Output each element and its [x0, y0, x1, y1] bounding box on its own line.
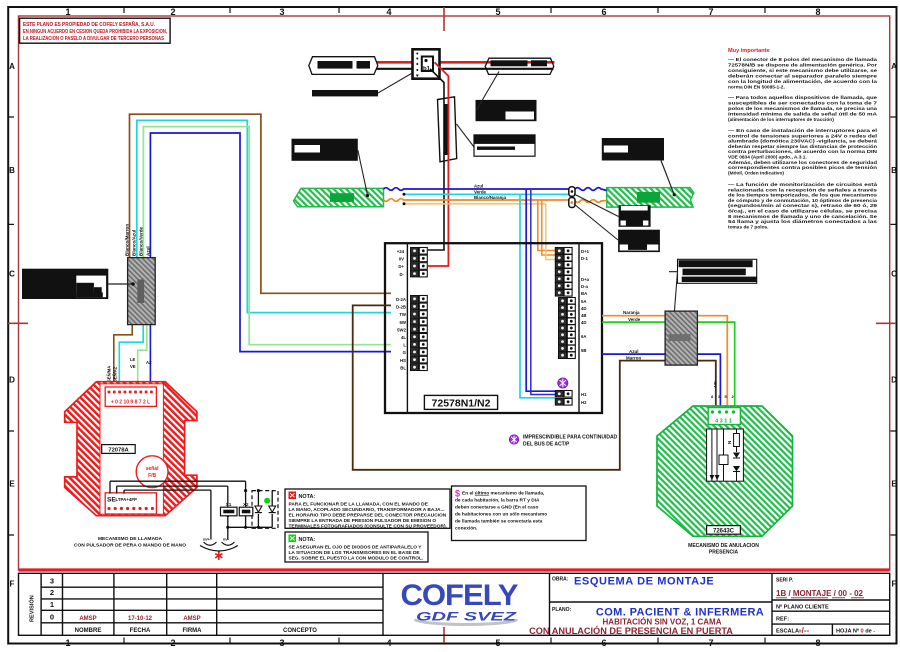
svg-text:contra perturbaciones, de a: contra perturbaciones, de acuerdo con la…	[728, 149, 878, 155]
svg-text:N: N	[727, 441, 732, 444]
svg-text:TERMINALES FOTOGRAFIADOS (CO: TERMINALES FOTOGRAFIADOS (CONSULTE CON S…	[289, 523, 447, 529]
svg-text:ó/caj., en el caso de uti: ó/caj., en el caso de utilizarse células…	[728, 209, 877, 215]
svg-text:6A: 6A	[581, 334, 587, 339]
svg-text:-/--: -/--	[799, 626, 810, 635]
svg-text:conexión.: conexión.	[455, 526, 477, 532]
svg-text:MECANISMO DE LLAMADA: MECANISMO DE LLAMADA	[98, 536, 163, 542]
svg-text:E: E	[9, 480, 15, 489]
svg-text:+ 0 2 10 9 8 7 2 L: + 0 2 10 9 8 7 2 L	[111, 400, 150, 406]
svg-text:deberán conectar al separad: deberán conectar al separador paralelo s…	[728, 74, 877, 80]
svg-text:CON PULSADOR DE PERA O MANDO D: CON PULSADOR DE PERA O MANDO DE MANO	[74, 543, 186, 549]
svg-text:BA: BA	[581, 291, 587, 296]
svg-text:señal: señal	[146, 466, 159, 472]
svg-text:tomas de 7 polos.: tomas de 7 polos.	[728, 224, 769, 230]
svg-text:4L: 4L	[401, 335, 406, 340]
svg-text:D-2A: D-2A	[396, 297, 406, 302]
svg-text:DEL BUS DE ACT/P: DEL BUS DE ACT/P	[523, 442, 570, 448]
svg-text:+24: +24	[397, 249, 405, 254]
svg-text:H1: H1	[581, 392, 587, 397]
svg-text:1: 1	[65, 638, 70, 648]
svg-text:susceptibles de ser conecta: susceptibles de ser conectados con la to…	[728, 101, 877, 107]
svg-text:polos de los mecanismos de lla: polos de los mecanismos de llamada, se p…	[728, 106, 877, 112]
svg-text:VDE 0834 (April 2000) apdo., A: VDE 0834 (April 2000) apdo., A.3.1.	[728, 155, 807, 161]
svg-text:deberán respetar siempre la: deberán respetar siempre las distancias …	[728, 144, 877, 150]
svg-text:B: B	[9, 166, 15, 175]
svg-text:72578N1/N2: 72578N1/N2	[432, 398, 491, 410]
svg-text:SIEMPRE LA ENTRADA DE PRES: SIEMPRE LA ENTRADA DE PRESION PULSADOR D…	[289, 518, 437, 524]
svg-text:HS: HS	[400, 358, 406, 363]
svg-text:deben conectarse a GND (En: deben conectarse a GND (En el caso	[455, 505, 539, 511]
svg-text:L: L	[403, 343, 406, 348]
svg-text:D+a: D+a	[581, 277, 590, 282]
svg-text:F: F	[892, 580, 897, 589]
svg-text:B: B	[891, 166, 897, 175]
svg-text:IMPRESCINDIBLE PARA CONTINUIDA: IMPRESCINDIBLE PARA CONTINUIDAD	[523, 435, 618, 441]
svg-text:$: $	[455, 489, 460, 499]
svg-text:BL: BL	[400, 365, 406, 370]
svg-text:4D: 4D	[581, 320, 587, 325]
svg-text:Verde: Verde	[474, 189, 487, 194]
svg-text:5W2: 5W2	[397, 327, 406, 332]
svg-text:En el último mecanismo de: En el último mecanismo de llamada,	[462, 491, 545, 497]
svg-text:A: A	[891, 62, 897, 71]
svg-text:5: 5	[495, 638, 500, 648]
svg-text:X2: X2	[243, 502, 249, 507]
svg-text:REF:: REF:	[776, 617, 789, 623]
svg-text:Marron: Marron	[626, 356, 642, 361]
svg-text:D-: D-	[399, 272, 404, 277]
svg-text:Blanco/Azul: Blanco/Azul	[132, 230, 137, 256]
svg-text:SE ASEGURAN EL OJO DE DIO: SE ASEGURAN EL OJO DE DIODOS DE ANTIPARA…	[289, 544, 423, 550]
svg-text:AMSP: AMSP	[79, 616, 96, 622]
svg-text:D+1: D+1	[581, 249, 590, 254]
svg-text:EN NINGUN ACUERDO EN CESION QU: EN NINGUN ACUERDO EN CESION QUEDA PROHIB…	[23, 29, 167, 35]
svg-text:de cómputo y de conmutació: de cómputo y de conmutación, 10 óptimos …	[728, 198, 877, 204]
svg-text:LA SITUACION DE LOS TRANSM: LA SITUACION DE LOS TRANSMISORES EN EL B…	[289, 550, 421, 556]
svg-text:VE: VE	[130, 364, 136, 369]
svg-text:Naranja: Naranja	[623, 310, 640, 315]
svg-text:TW: TW	[399, 312, 407, 317]
svg-text:LTPA+4FP: LTPA+4FP	[116, 497, 137, 502]
svg-text:REVISIÓN: REVISIÓN	[28, 595, 36, 622]
svg-text:de llamada también se cone: de llamada también se conectaría esta	[455, 519, 543, 525]
svg-text:PARA EL FUNCIONAR DE LA L: PARA EL FUNCIONAR DE LA LLAMADA, CON EL …	[289, 501, 429, 507]
svg-text:Blanco/Verde: Blanco/Verde	[139, 226, 144, 256]
svg-text:Muy importante: Muy importante	[728, 48, 770, 54]
svg-text:PRESENCIA: PRESENCIA	[709, 550, 739, 556]
svg-text:D+: D+	[398, 264, 404, 269]
svg-text:SEÑ/AZ: SEÑ/AZ	[113, 366, 118, 382]
svg-text:AMSP: AMSP	[183, 616, 200, 622]
svg-text:norma DIN EN 50085-1-2.: norma DIN EN 50085-1-2.	[728, 85, 785, 91]
svg-text:1: 1	[50, 600, 54, 609]
svg-text:4 3 1 1: 4 3 1 1	[715, 419, 732, 425]
svg-text:H2: H2	[581, 400, 587, 405]
svg-text:Blanco/Naranja: Blanco/Naranja	[474, 195, 507, 200]
svg-text:m/-: m/-	[223, 537, 230, 542]
svg-text:SERI P.: SERI P.	[776, 578, 794, 584]
svg-text:E: E	[891, 480, 897, 489]
svg-text:0: 0	[50, 612, 54, 621]
svg-text:OBRA:: OBRA:	[552, 577, 569, 583]
svg-text:m/+: m/+	[203, 537, 211, 542]
svg-text:4D: 4D	[581, 306, 587, 311]
svg-text:FECHA: FECHA	[130, 628, 151, 634]
svg-text:4: 4	[386, 638, 391, 648]
svg-text:54 llama y ajusta los diá: 54 llama y ajusta los diámetros conectad…	[728, 219, 877, 225]
svg-text:Azul: Azul	[146, 246, 151, 256]
svg-text:correspondientes contra posi: correspondientes contra posibles picos d…	[728, 165, 877, 171]
svg-text:de los tiempos temporizados: de los tiempos temporizados, de los que …	[728, 193, 877, 199]
svg-text:8 mecanismos de llamada y: 8 mecanismos de llamada y uno de cancela…	[728, 214, 877, 220]
svg-text:0V: 0V	[399, 257, 404, 262]
svg-text:LE: LE	[130, 357, 136, 362]
svg-text:3: 3	[50, 577, 54, 586]
svg-text:CONCEPTO: CONCEPTO	[283, 628, 317, 634]
svg-text:ESCALA:: ESCALA:	[776, 628, 801, 634]
svg-text:COFELY: COFELY	[401, 579, 519, 612]
svg-text:1B / MONTAJE / 00 - 02: 1B / MONTAJE / 00 - 02	[776, 589, 864, 598]
svg-text:LA MANO, ACOPLADO SECUNDARI: LA MANO, ACOPLADO SECUNDARIO, TRANSFORMA…	[289, 507, 445, 513]
svg-text:X1: X1	[226, 502, 232, 507]
svg-text:PLANO:: PLANO:	[552, 607, 572, 613]
svg-text:72078A: 72078A	[108, 448, 129, 454]
svg-text:A/B: A/B	[713, 381, 718, 388]
svg-text:Blanco/Marron: Blanco/Marron	[125, 224, 130, 256]
svg-text:2: 2	[170, 638, 175, 648]
svg-text:con la longitud de alimentació: con la longitud de alimentación, de acue…	[728, 79, 877, 85]
svg-text:2: 2	[50, 588, 54, 597]
svg-text:5W: 5W	[400, 320, 407, 325]
svg-text:Azul: Azul	[474, 184, 483, 189]
svg-text:C: C	[9, 270, 15, 279]
svg-text:(Móvil, Orden Indicativo): (Móvil, Orden Indicativo)	[728, 170, 784, 176]
svg-text:ESTE PLANO ES PROPIEDAD DE COF: ESTE PLANO ES PROPIEDAD DE COFELY ESPAÑA…	[23, 21, 155, 28]
svg-text:de habitaciones con un sól: de habitaciones con un sólo mecanismo	[455, 512, 547, 518]
svg-text:8: 8	[815, 638, 820, 648]
svg-text:de cada habitación, la bar: de cada habitación, la barra RT y DIA	[455, 498, 540, 504]
svg-text:F/B: F/B	[148, 473, 156, 479]
svg-text:— La función de monitorizac: — La función de monitorización de circui…	[728, 182, 877, 188]
svg-text:5A: 5A	[581, 299, 587, 304]
svg-text:D-1: D-1	[581, 256, 589, 261]
svg-text:(segundos/min al conectar s: (segundos/min al conectar s), retraso de…	[728, 203, 877, 209]
svg-text:72643C: 72643C	[713, 529, 735, 535]
svg-text:intensidad mínima de salida de: intensidad mínima de salida de señal úti…	[728, 112, 878, 118]
svg-text:D-2B: D-2B	[396, 305, 406, 310]
svg-text:3: 3	[279, 638, 284, 648]
svg-text:7: 7	[708, 638, 713, 648]
svg-text:AZ: AZ	[146, 360, 152, 365]
svg-text:alumbrado (domótica 230VAC) -v: alumbrado (domótica 230VAC) -vigilancia,…	[728, 139, 877, 145]
svg-text:relacionada con la recepció: relacionada con la recepción de señales …	[728, 187, 877, 193]
svg-text:C: C	[891, 270, 897, 279]
svg-text:ESQUEMA DE MONTAJE: ESQUEMA DE MONTAJE	[574, 576, 714, 588]
svg-text:72578N/B se dispone de aliment: 72578N/B se dispone de alimentación gené…	[728, 63, 877, 69]
svg-text:(alimentación de los interrupt: (alimentación de los interruptores de tr…	[728, 117, 834, 123]
svg-text:D: D	[9, 376, 15, 385]
svg-text:Verde: Verde	[628, 317, 641, 322]
svg-text:Nº PLANO CLIENTE: Nº PLANO CLIENTE	[776, 604, 829, 610]
svg-text:— En caso de instalación de in: — En caso de instalación de interruptore…	[728, 128, 877, 134]
svg-text:D: D	[891, 376, 897, 385]
svg-text:NOTA:: NOTA:	[299, 537, 316, 543]
svg-text:6: 6	[601, 638, 606, 648]
svg-text:4B: 4B	[581, 313, 587, 318]
svg-text:SEÑ/MA: SEÑ/MA	[107, 366, 112, 382]
svg-text:control de tensiones superi: control de tensiones superiores a 24V o …	[728, 133, 877, 139]
svg-text:GDF SVEZ: GDF SVEZ	[416, 612, 518, 624]
svg-text:5B: 5B	[581, 348, 587, 353]
svg-text:HABITACIÓN SIN VOZ, 1 CAMA: HABITACIÓN SIN VOZ, 1 CAMA	[603, 617, 722, 626]
svg-text:NOMBRE: NOMBRE	[75, 628, 102, 634]
svg-text:— Para todos aquellos disposit: — Para todos aquellos dispositivos de ll…	[728, 95, 877, 101]
svg-text:consiguiente, si este mecanism: consiguiente, si este mecanismo debe uti…	[728, 68, 877, 74]
svg-text:FIRMA: FIRMA	[183, 628, 203, 634]
svg-text:CON ANULACIÓN DE PRESENCIA EN: CON ANULACIÓN DE PRESENCIA EN PUERTA	[529, 625, 733, 636]
svg-text:Además, deben utilizarse lo: Además, deben utilizarse los conectores …	[728, 160, 877, 166]
svg-text:b1: b1	[423, 67, 431, 73]
svg-text:NOTA:: NOTA:	[299, 494, 316, 500]
svg-text:F: F	[10, 580, 15, 589]
svg-text:A: A	[9, 62, 15, 71]
svg-text:HOJA Nº 0 de -: HOJA Nº 0 de -	[836, 628, 875, 634]
svg-text:MECANISMO DE ANULACION: MECANISMO DE ANULACION	[688, 543, 759, 549]
svg-text:Azul: Azul	[629, 349, 639, 354]
svg-text:D-a: D-a	[581, 284, 589, 289]
svg-text:EL HORARIO TIPO DEBE PREPA: EL HORARIO TIPO DEBE PREPARSE DEL CONECT…	[289, 513, 447, 519]
svg-text:17-10-12: 17-10-12	[128, 616, 153, 622]
svg-text:SEG. SOBRE EL PUESTO LA C: SEG. SOBRE EL PUESTO LA CON MODULO DE CO…	[289, 556, 424, 562]
svg-text:LA REALIZACION O PASELO A DIVU: LA REALIZACION O PASELO A DIVULGAR DE TE…	[23, 36, 164, 42]
svg-text:— El conector de 8 polos del m: — El conector de 8 polos del mecanismo d…	[728, 57, 877, 63]
